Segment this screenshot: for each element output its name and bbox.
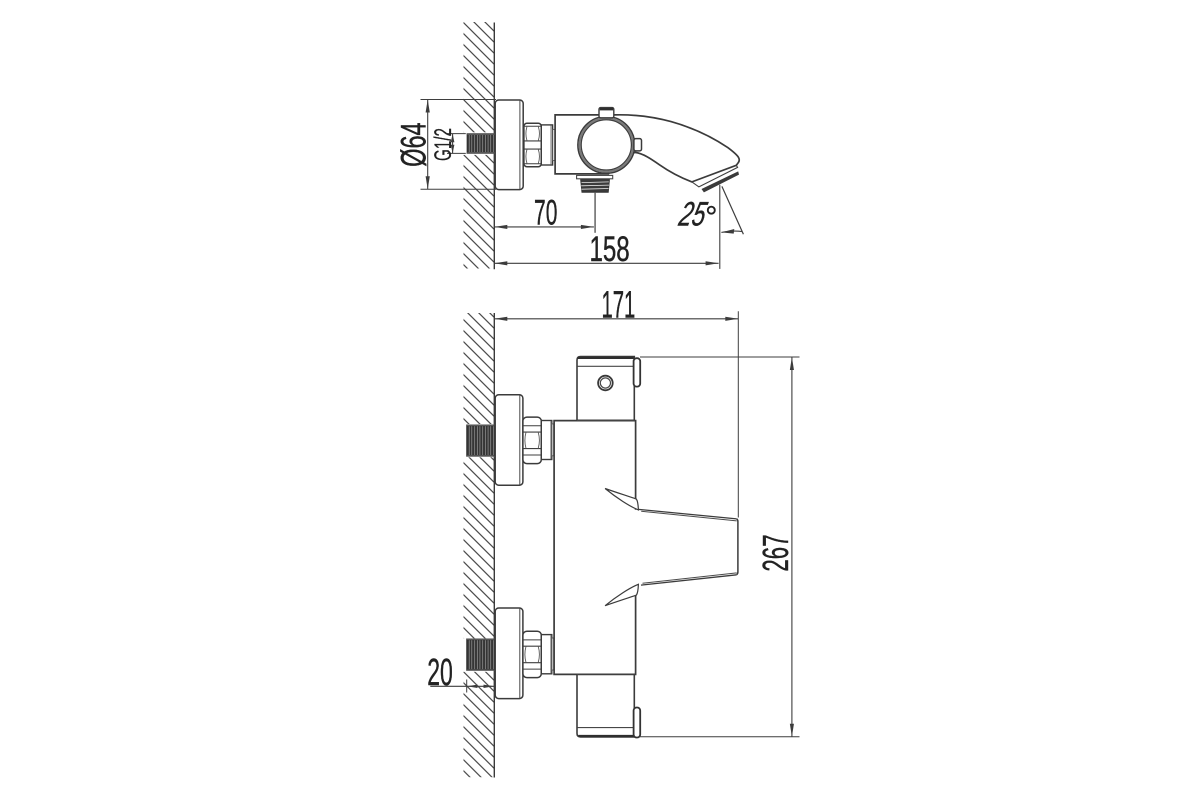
svg-text:158: 158 bbox=[589, 230, 629, 269]
svg-text:Ø64: Ø64 bbox=[394, 122, 433, 167]
svg-text:70: 70 bbox=[534, 193, 557, 232]
svg-text:20: 20 bbox=[427, 652, 453, 694]
svg-text:G1/2: G1/2 bbox=[430, 128, 457, 161]
svg-text:267: 267 bbox=[755, 534, 796, 571]
svg-text:171: 171 bbox=[601, 285, 635, 327]
